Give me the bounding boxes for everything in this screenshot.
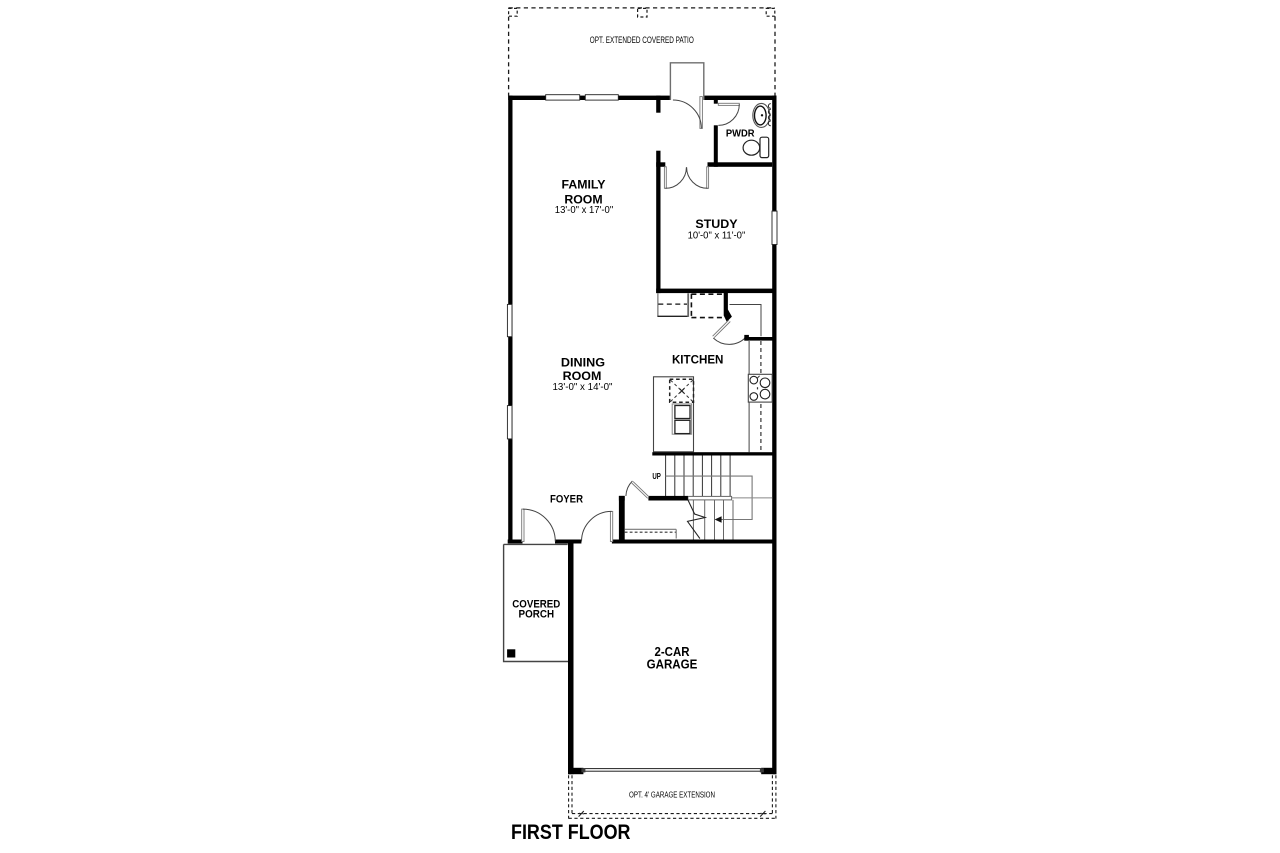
svg-text:OPT. 4' GARAGE EXTENSION: OPT. 4' GARAGE EXTENSION — [629, 789, 715, 799]
svg-text:UP: UP — [652, 472, 661, 481]
svg-text:FOYER: FOYER — [550, 494, 583, 506]
svg-text:DINING: DINING — [561, 356, 605, 370]
svg-text:FAMILY: FAMILY — [562, 178, 606, 192]
svg-text:13'-0" x 14'-0": 13'-0" x 14'-0" — [553, 381, 613, 393]
svg-text:PWDR: PWDR — [726, 128, 755, 140]
svg-text:GARAGE: GARAGE — [647, 657, 698, 671]
svg-text:FIRST FLOOR: FIRST FLOOR — [511, 821, 631, 844]
svg-text:10'-0" x 11'-0": 10'-0" x 11'-0" — [688, 230, 746, 242]
svg-text:OPT. EXTENDED COVERED PATIO: OPT. EXTENDED COVERED PATIO — [590, 35, 694, 45]
svg-text:PORCH: PORCH — [519, 609, 555, 621]
svg-text:KITCHEN: KITCHEN — [672, 352, 724, 366]
svg-text:13'-0" x 17'-0": 13'-0" x 17'-0" — [555, 204, 614, 216]
